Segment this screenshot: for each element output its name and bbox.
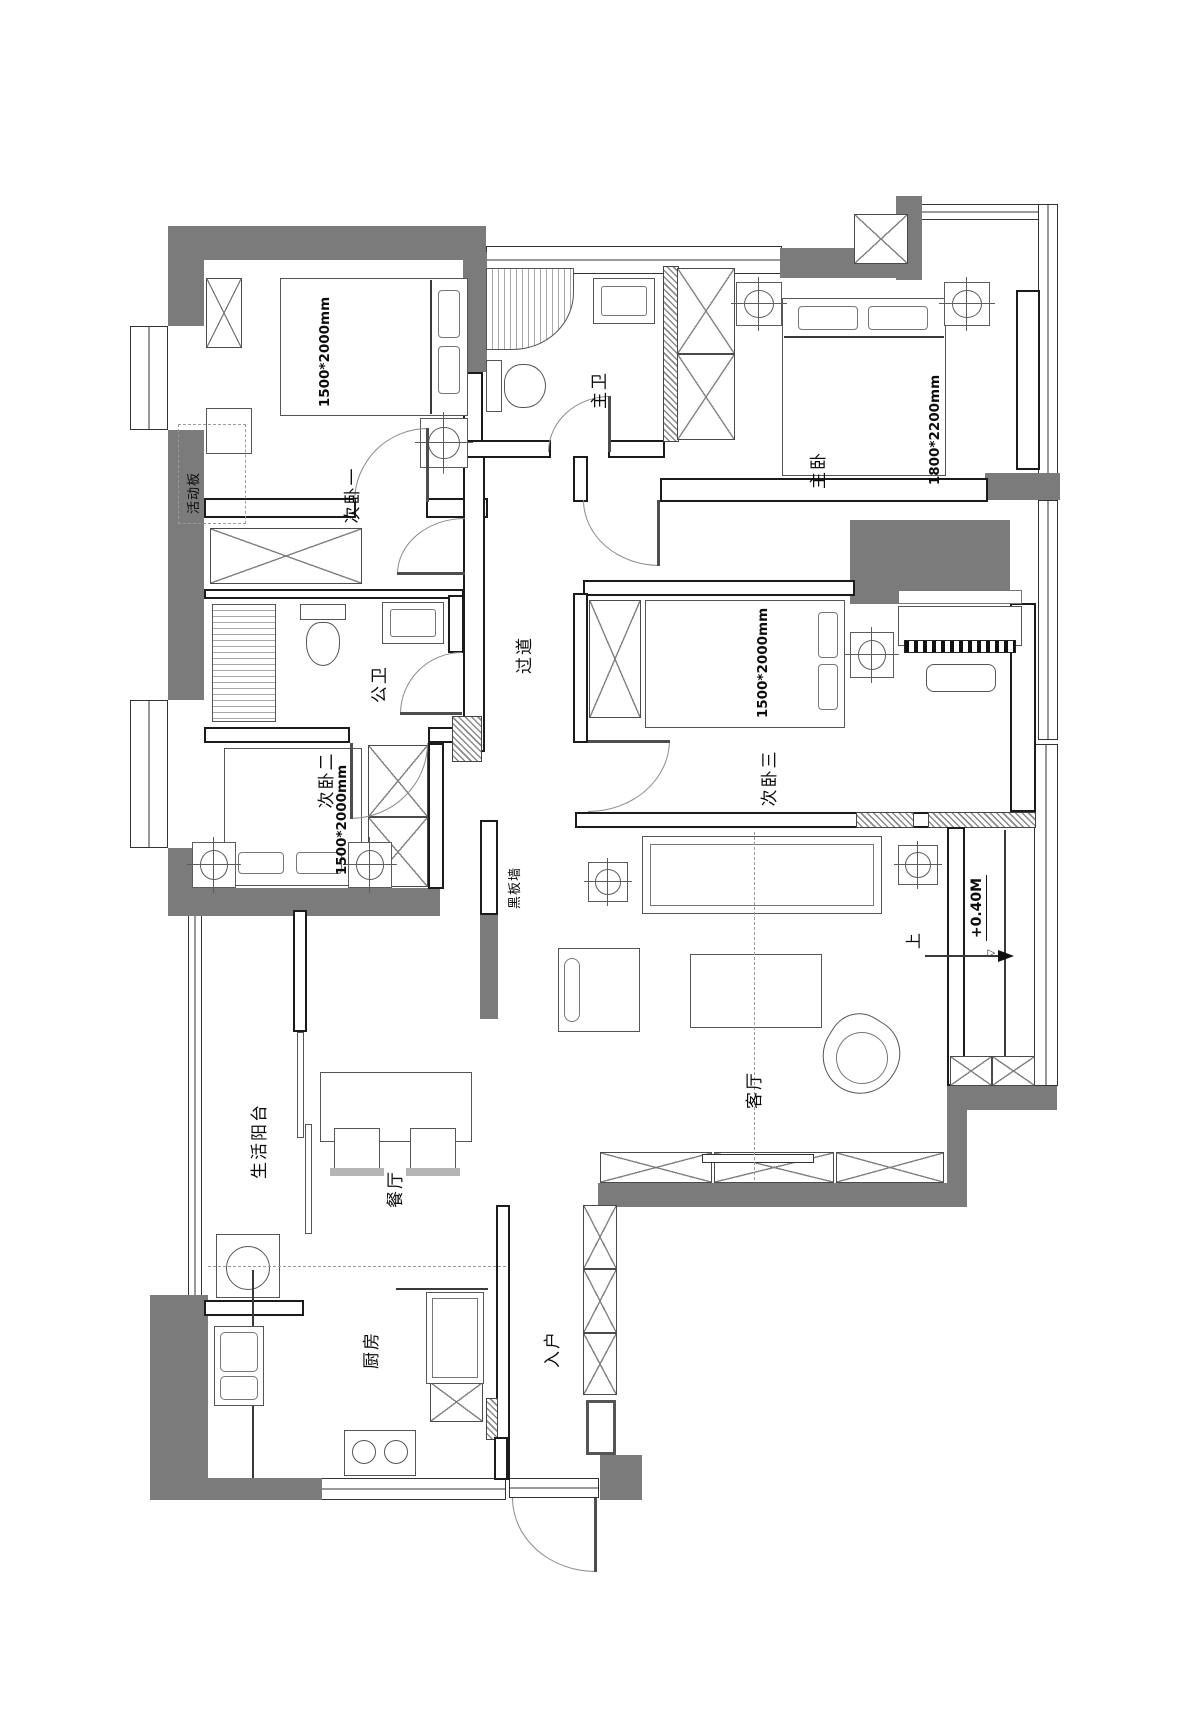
window-kitchen-bottom <box>320 1478 506 1500</box>
wall-bedroom3-top <box>583 580 855 596</box>
wall-dining-partition <box>480 820 498 915</box>
platform-cabinet-1 <box>950 1056 992 1086</box>
sink-basin <box>220 1376 258 1400</box>
label-masterbath: 主卫 <box>586 360 608 420</box>
up-arrow-line <box>925 955 1001 957</box>
wall-top-bedroom1 <box>168 226 486 260</box>
pillow <box>438 346 460 394</box>
sink-basin <box>390 609 436 637</box>
washer-drum <box>226 1246 270 1290</box>
wall-balcony-divider <box>293 910 307 1032</box>
tv-cabinet-3 <box>836 1152 944 1183</box>
window-balcony-left <box>188 914 202 1298</box>
shoe-cabinet-1 <box>583 1205 617 1269</box>
window-right-upper <box>1038 204 1058 474</box>
pillow <box>798 306 858 330</box>
door-leaf-bedroom3 <box>588 740 670 743</box>
pillow <box>438 290 460 338</box>
shoe-cabinet-low <box>586 1400 616 1455</box>
pillow <box>818 664 838 710</box>
wall-corridor-left <box>463 456 485 752</box>
dining-chair-back <box>330 1168 384 1176</box>
wall-masterbed-corner <box>985 473 1060 500</box>
balcony-counter-edge <box>204 1300 304 1316</box>
wall-masterbath-bottom-right <box>608 440 665 458</box>
toilet-masterbath <box>486 360 502 412</box>
wall-kitchen-left <box>150 1295 208 1500</box>
wardrobe-masterbed-corner <box>854 214 908 264</box>
toilet-bowl <box>306 622 340 666</box>
up-arrow-head-icon <box>998 950 1014 962</box>
wall-hatch-corridor-corner <box>452 716 482 762</box>
door-arc-vestibule <box>397 518 465 574</box>
floor-level-text: +0.40M <box>969 875 987 941</box>
floor-level-marker: +0.40M ▽ <box>969 853 1005 963</box>
wall-bedroom3-left <box>573 593 588 743</box>
tv-cabinet-1 <box>600 1152 712 1183</box>
bed-bedroom3 <box>645 600 845 728</box>
shoe-cabinet-2 <box>583 1269 617 1333</box>
wall-publicbath-top <box>204 589 464 599</box>
wardrobe-bedroom3 <box>589 600 641 718</box>
label-masterbed: 主卧 <box>805 440 827 500</box>
burner <box>384 1440 408 1464</box>
sofa-seat <box>650 844 874 906</box>
coffee-table <box>690 954 822 1028</box>
label-blackboard-wall: 黑板墙 <box>503 848 523 928</box>
dim-bedroom2: 1500*2000mm <box>331 750 353 890</box>
bay-window-bedroom1 <box>130 326 168 430</box>
label-bedroom3: 次卧三 <box>756 738 778 818</box>
bed-line <box>430 280 432 414</box>
toilet-publicbath <box>300 604 346 620</box>
bed-line <box>784 336 944 338</box>
shower-masterbath <box>486 268 574 350</box>
wardrobe-masterbath-2 <box>677 354 735 440</box>
bay-window-bedroom2 <box>130 700 168 848</box>
wall-left-3 <box>168 604 204 700</box>
label-balcony: 生活阳台 <box>246 1086 268 1196</box>
burner <box>352 1440 376 1464</box>
fridge-inner <box>432 1298 478 1378</box>
nightstand-lamp-master-left <box>736 282 782 326</box>
piano-shelf <box>898 590 1022 604</box>
downlight-living <box>898 845 938 885</box>
sink-basin <box>601 286 647 316</box>
wall-publicbath-right <box>448 595 464 653</box>
door-leaf-bedroom1 <box>426 428 429 502</box>
door-arc-entry <box>512 1498 596 1572</box>
dim-bedroom3: 1500*2000mm <box>752 593 774 733</box>
pillow <box>868 306 928 330</box>
wall-blackboard <box>480 913 498 1019</box>
window-right-platform <box>1034 744 1058 1086</box>
label-movable-panel: 活动板 <box>182 458 202 528</box>
armchair-bolster <box>564 958 580 1022</box>
door-arc-bedroom1 <box>354 428 428 502</box>
piano-bench <box>926 664 996 692</box>
wall-bedroom2-right <box>428 743 444 889</box>
wall-living-bottom <box>598 1183 948 1207</box>
nightstand-lamp-bedroom2-left <box>192 842 236 888</box>
dim-bedroom1: 1500*2000mm <box>314 282 336 422</box>
shoe-cabinet-3 <box>583 1333 617 1395</box>
label-living: 客厅 <box>741 1058 763 1122</box>
wall-hatch-bedroom3-bottom-1 <box>856 812 914 828</box>
wall-masterbed-right-inner <box>1016 290 1040 470</box>
wall-hatch-bedroom3-bottom-2 <box>928 812 1036 828</box>
floor-plan: +0.40M ▽ 上 次卧一 1500*2000mm 主卫 主卧 1800*22… <box>0 0 1200 1736</box>
counter-line-fridge <box>396 1288 488 1290</box>
label-kitchen: 厨房 <box>358 1320 380 1380</box>
floor-lamp-living <box>588 862 628 902</box>
up-label: 上 <box>900 928 924 952</box>
door-leaf-entry <box>594 1498 597 1572</box>
label-publicbath: 公卫 <box>366 654 388 714</box>
door-leaf-vestibule <box>397 572 465 575</box>
label-corridor: 过道 <box>511 623 533 687</box>
toilet-bowl <box>504 364 546 408</box>
dining-chair-back <box>406 1168 460 1176</box>
entry-threshold <box>509 1478 599 1498</box>
wall-step-horizontal <box>947 1086 1057 1110</box>
wall-corridor-right-upper <box>573 456 588 502</box>
door-arc-bedroom3 <box>588 740 670 812</box>
sink-basin <box>220 1332 258 1372</box>
label-dining: 餐厅 <box>382 1159 404 1219</box>
cabinet-under-fridge <box>430 1382 483 1422</box>
nightstand-lamp-master-right <box>944 282 990 326</box>
pillow <box>238 852 284 874</box>
door-arc-masterbed <box>583 500 660 566</box>
door-leaf-masterbed <box>657 500 660 566</box>
sliding-panel-1 <box>297 1032 304 1138</box>
dim-masterbed: 1800*2200mm <box>924 355 946 505</box>
label-entry: 入户 <box>539 1319 561 1379</box>
door-leaf-publicbath <box>400 712 462 715</box>
piano-keys <box>904 640 1016 653</box>
window-right-middle <box>1038 500 1058 740</box>
wardrobe-bedroom1 <box>206 278 242 348</box>
kitchen-boundary-line <box>208 1266 506 1267</box>
wall-kitchen-bottom <box>150 1478 322 1500</box>
platform-cabinet-2 <box>992 1056 1035 1086</box>
tv-symbol <box>702 1154 814 1163</box>
door-arc-publicbath <box>400 652 462 714</box>
label-bedroom1: 次卧一 <box>339 450 361 540</box>
sliding-panel-2 <box>305 1124 312 1234</box>
shower-publicbath <box>212 604 276 722</box>
pillow <box>818 612 838 658</box>
wall-left-1 <box>168 226 204 326</box>
wall-entry-corner <box>600 1455 642 1500</box>
wardrobe-masterbath-1 <box>677 268 735 354</box>
wall-kitchen-right-lower <box>494 1437 508 1480</box>
living-axis-line <box>754 832 755 1180</box>
wall-kitchen-right-hatch <box>486 1398 498 1440</box>
nightstand-lamp-bedroom3 <box>850 632 894 678</box>
nightstand-lamp-bedroom2-right <box>348 842 392 888</box>
